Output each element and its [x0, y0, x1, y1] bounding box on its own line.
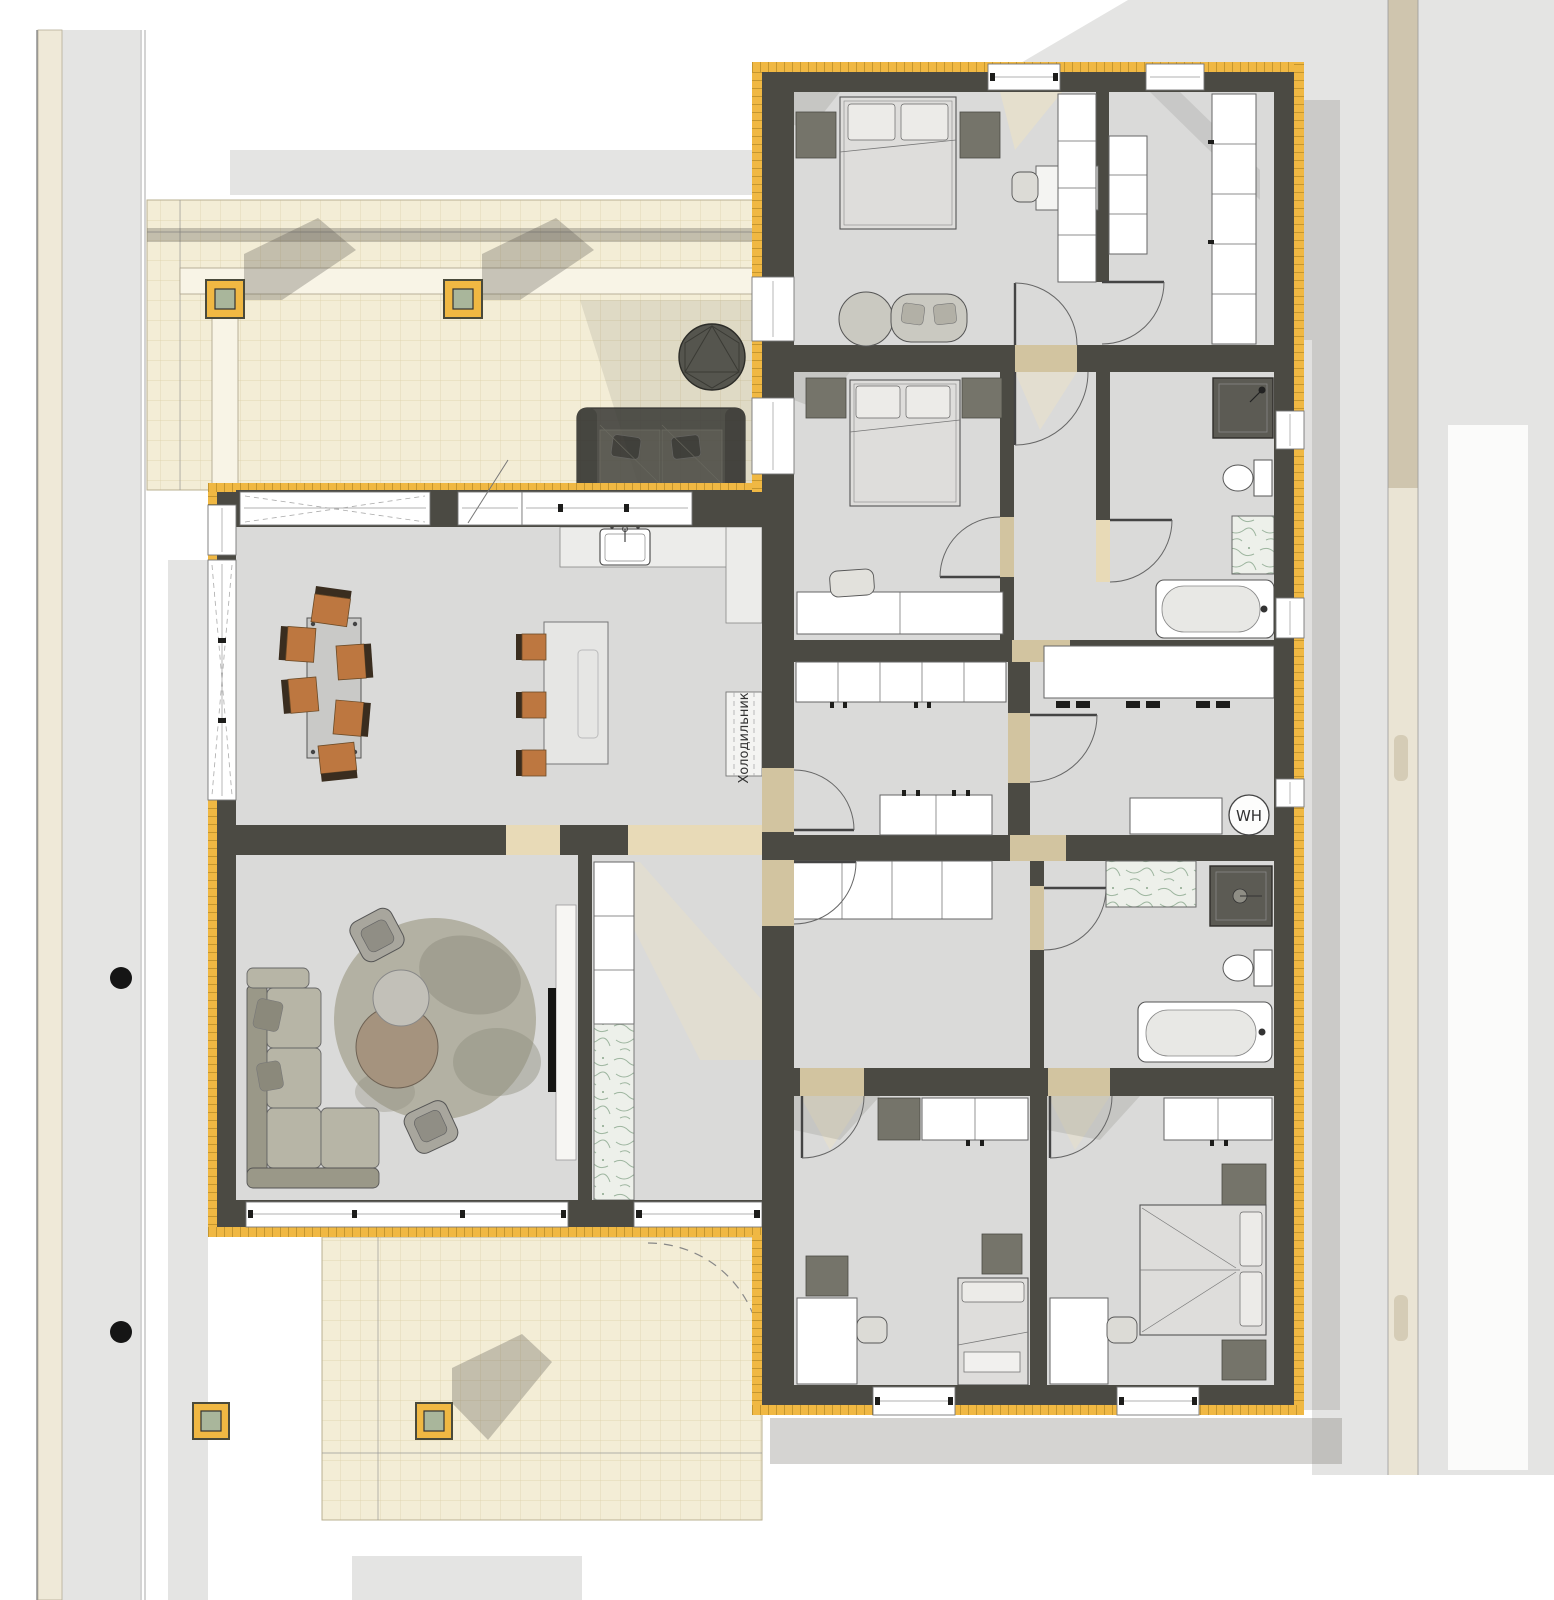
opening-hall-corridor-wall	[762, 860, 794, 926]
cabinet-mid	[880, 790, 992, 835]
nightstand	[806, 378, 846, 418]
double-bed	[850, 380, 960, 506]
floor-plan-canvas: Холодильник	[0, 0, 1554, 1600]
sofa-pillow	[256, 1060, 284, 1092]
exterior-hatch-south	[208, 1227, 762, 1237]
pergola-post	[416, 1403, 452, 1439]
terrace-north	[147, 200, 762, 492]
desk	[1050, 1298, 1108, 1384]
white-area-south-east	[1312, 1475, 1554, 1600]
hall-cabinet	[594, 862, 634, 1024]
utility-cabinet	[1130, 798, 1222, 834]
window-west-master2	[752, 398, 794, 474]
window-east-bath1	[1276, 411, 1304, 449]
dining-chair	[311, 586, 352, 627]
shelving-column	[1109, 136, 1147, 254]
pergola-post	[193, 1403, 229, 1439]
dining-chair	[318, 742, 358, 782]
desk-chair	[857, 1317, 887, 1343]
entry-door	[634, 1202, 762, 1227]
utility-counter	[1044, 646, 1274, 698]
wardrobe	[1164, 1098, 1272, 1146]
pavement-west-inner	[168, 560, 208, 1600]
window-north-closet	[1146, 64, 1204, 90]
desk-chair	[1107, 1317, 1137, 1343]
wall-west-wing	[762, 62, 794, 1405]
bench-pillow	[933, 303, 957, 325]
bench-pillow	[901, 303, 926, 326]
refrigerator-label: Холодильник	[737, 692, 752, 783]
footpath-blob	[1394, 735, 1408, 781]
desk-chair	[1012, 172, 1038, 202]
bed-footer	[964, 1352, 1020, 1372]
white-strip-east	[1448, 425, 1528, 1470]
window-south-bedroom3	[873, 1387, 955, 1415]
opening-dining-hall	[628, 825, 762, 855]
right-wing: WH	[752, 62, 1304, 1415]
wall-south-wing	[762, 1385, 1294, 1405]
nightstand	[796, 112, 836, 158]
sofa-pillow	[611, 434, 642, 460]
shelving-column	[1058, 94, 1096, 282]
water-heater: WH	[1229, 795, 1269, 835]
window-north	[522, 492, 692, 525]
window-east-bath1-tub	[1276, 598, 1304, 638]
terrace-south-tiles	[322, 1237, 762, 1520]
shower	[1213, 378, 1273, 438]
bathtub-faucet	[1261, 606, 1268, 613]
pergola-post	[206, 280, 244, 318]
pergola-beam-vertical	[212, 294, 238, 490]
nightstand	[1222, 1164, 1266, 1206]
pavement-block-north	[230, 150, 758, 195]
bar-stool	[516, 692, 546, 718]
nightstand	[962, 378, 1002, 418]
window-corner-north	[240, 492, 430, 525]
window-west-master	[752, 277, 794, 341]
dresser	[806, 1256, 848, 1296]
nightstand	[960, 112, 1000, 158]
tv-panel	[556, 905, 576, 1160]
opening-bedroom4-door	[1048, 1068, 1110, 1096]
opening-bathroom2-door	[1030, 886, 1044, 950]
opening-utility-door	[1008, 713, 1030, 783]
exterior-hatch-west-south	[752, 1235, 762, 1405]
window-north-master	[988, 64, 1060, 90]
bathtub	[1138, 1002, 1272, 1062]
single-bed	[958, 1278, 1028, 1385]
double-bed	[840, 97, 956, 229]
rug-shadow	[453, 1028, 541, 1096]
window-corner-west	[208, 505, 236, 555]
boundary-beige-strip	[38, 30, 62, 1600]
sofa-armrest	[577, 408, 597, 492]
pergola-post	[444, 280, 482, 318]
left-wing: Холодильник	[208, 460, 762, 1237]
sofa-armrest	[725, 408, 745, 492]
opening-master-door	[1015, 345, 1077, 372]
tv-partition-wall	[578, 855, 592, 1200]
boundary-dot	[110, 967, 132, 989]
house-shadow-south	[770, 1418, 1342, 1464]
sofa-cushion	[267, 1108, 321, 1168]
shower	[1210, 866, 1272, 926]
wall-living-dining	[236, 825, 506, 855]
house-shadow-east	[1304, 100, 1340, 1410]
pergola-beam-shadow	[147, 228, 762, 242]
footpath-blob	[1394, 1295, 1408, 1341]
opening-corridor-south	[1010, 835, 1066, 861]
dining-chair	[281, 677, 319, 714]
opening-living-dining	[506, 825, 560, 855]
water-heater-label: WH	[1236, 807, 1262, 825]
window-south-bedroom4	[1117, 1387, 1199, 1415]
desk-row	[797, 592, 1003, 634]
coffee-table-small	[373, 970, 429, 1026]
outdoor-round-table	[679, 324, 745, 390]
bar-stool	[516, 634, 546, 660]
wardrobe	[922, 1098, 1028, 1146]
tv-screen	[548, 988, 556, 1092]
wall-tv-top	[560, 825, 628, 855]
window-west-large	[208, 560, 236, 800]
floor-plan-drawing: Холодильник	[0, 0, 1554, 1600]
marble-vanity	[1232, 516, 1274, 574]
window-east-utility	[1276, 779, 1304, 807]
cabinet	[878, 1098, 920, 1140]
wardrobe-row-south	[792, 861, 992, 919]
refrigerator-niche: Холодильник	[726, 692, 762, 784]
bench-sofa	[839, 292, 967, 346]
pavement-south-west	[352, 1556, 582, 1600]
opening-bedroom3-door	[800, 1068, 864, 1096]
wall-bedrooms-north	[794, 1068, 1274, 1096]
opening-bedroom2-door	[1000, 517, 1014, 577]
sofa-chaise	[321, 1108, 379, 1168]
dining-chair	[279, 626, 316, 662]
wall-bedroom3-4	[1030, 1096, 1047, 1385]
desk	[797, 1298, 857, 1384]
bathtub-faucet	[1259, 1029, 1266, 1036]
dining-chair	[333, 700, 371, 737]
dining-chair	[336, 644, 373, 680]
exterior-hatch-south	[752, 1405, 1304, 1415]
opening-kitchen-corridor	[762, 768, 794, 832]
pavement-west	[62, 30, 140, 1600]
bathtub	[1156, 580, 1274, 638]
marble-vanity	[1106, 861, 1196, 907]
footpath-south	[1388, 488, 1418, 1600]
wardrobe-row-north	[796, 662, 1006, 708]
double-bed	[1140, 1205, 1266, 1335]
window-south	[246, 1202, 568, 1227]
outdoor-sofa	[577, 408, 745, 492]
nightstand	[1222, 1340, 1266, 1380]
opening-bathroom1-door	[1096, 520, 1110, 582]
bar-stool	[516, 750, 546, 776]
footpath-north	[1388, 0, 1418, 488]
kitchen-counter-return	[726, 527, 762, 623]
wall-bathroom1-west	[1096, 372, 1110, 520]
sofa-armrest	[247, 968, 309, 988]
sofa-front-rail	[247, 1168, 379, 1188]
cabinet	[982, 1234, 1022, 1274]
wall-east-wing	[1274, 72, 1294, 1405]
shelving-column	[1208, 94, 1256, 344]
kitchen-sink	[600, 525, 650, 565]
desk-chair	[829, 568, 875, 597]
boundary-dot	[110, 1321, 132, 1343]
marble-column	[594, 1024, 634, 1200]
exterior-hatch-east	[1294, 62, 1304, 1415]
